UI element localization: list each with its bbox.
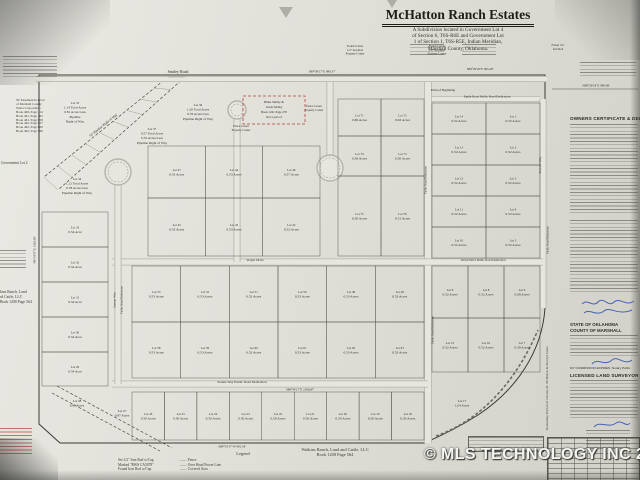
certificate-paragraph xyxy=(570,220,638,294)
lot-number: Lot 44 xyxy=(230,168,239,172)
bearing-label: S89°54'17"E 1056.87' xyxy=(286,388,315,392)
lot-number: Lot 18 xyxy=(404,412,413,416)
lot-acreage: 0.50 Acres xyxy=(303,417,319,421)
lot-acreage: 0.50 Acres xyxy=(400,417,416,421)
lot-acreage: 0.55 Acres Less xyxy=(141,136,163,140)
lot-number: Lot 2 xyxy=(510,145,517,149)
lot-acreage: 0.53 Acres xyxy=(169,228,185,232)
lot-acreage: 0.69 Acres xyxy=(515,293,531,297)
corner-note xyxy=(3,56,57,80)
lot-acreage: 0.50 Acres xyxy=(271,417,287,421)
lot-acreage: Pipeline Right of Way xyxy=(183,117,213,121)
lot-number: Lot 15 xyxy=(446,341,455,345)
lot-number: Lot 36 xyxy=(194,103,203,107)
lot-number: Lot 12 xyxy=(455,176,464,180)
lot-number: Lot 13 xyxy=(455,145,464,149)
text-line: Found Iron Rod w/Cap xyxy=(118,467,154,472)
lot-acreage: 1.20 Total Acres xyxy=(187,108,210,112)
commission-expires-label: MY COMMISSION EXPIRES: xyxy=(570,366,611,370)
lot-acreage: 0.52 Acres xyxy=(506,243,522,247)
pipeline-hatch xyxy=(154,88,171,89)
title-block: McHatton Ranch Estates A Subdivision loc… xyxy=(352,6,564,52)
lot-number: Lot 8 xyxy=(483,288,490,292)
lot-number: Lot 16 xyxy=(482,341,491,345)
pipeline-hatch xyxy=(72,155,87,165)
notary-public-label: Notary Public xyxy=(612,366,630,370)
certificate-panel: OWNERS CERTIFICATE & DEDICATION STATE OF… xyxy=(556,60,640,480)
lot-number: Lot 7 xyxy=(519,341,526,345)
street-label: Serene Way Public Road Dedication xyxy=(217,380,267,384)
lot-acreage: 0.52 Acres xyxy=(443,293,459,297)
lot-acreage: 0.53 Acres xyxy=(246,295,262,299)
excluded-parcel-text: Linda Smiley xyxy=(266,105,283,109)
red-filing-stamp xyxy=(0,428,32,454)
lot-number: Lot 51 xyxy=(250,290,259,294)
lot-number: Lot 1 xyxy=(510,114,517,118)
bearing-label: 50' Pipeline Right of Way xyxy=(89,113,119,138)
lot-acreage: Pipeline Right of Way xyxy=(62,191,92,195)
lot-acreage: 0.50 Acres xyxy=(352,217,368,221)
pipeline-hatch xyxy=(85,144,100,153)
legend-heading: Legend xyxy=(118,451,368,456)
lot-number: Lot 22 xyxy=(274,412,283,416)
lot-acreage: 0.53 Acres xyxy=(295,295,311,299)
lot-number: Lot 30 xyxy=(71,330,80,334)
lot-acreage: 0.56 Acres xyxy=(352,157,368,161)
lot-number: Lot 23 xyxy=(241,412,250,416)
clip-shadow-artifact xyxy=(387,0,397,8)
lot-acreage: Pipeline Right of Way xyxy=(137,141,167,145)
text-line: Covered Area xyxy=(180,467,221,472)
lot-number: Lot 31 xyxy=(71,295,80,299)
street-label: Public Road Dedication xyxy=(423,166,427,194)
lot-acreage: 0.78 Acres Less xyxy=(66,186,88,190)
lot-acreage: 0.53 Acres xyxy=(246,351,262,355)
lot-acreage: 0.53 Acres xyxy=(198,351,214,355)
lot-acreage: 0.52 Acres xyxy=(506,212,522,216)
lot-number: Lot 71 xyxy=(355,113,364,117)
lot-acreage: 0.50 Acres xyxy=(395,157,411,161)
lot-acreage: 0.50 Acres xyxy=(206,417,222,421)
state-heading: STATE OF OKLAHOMA xyxy=(570,322,618,327)
lot-number: Lot 61 xyxy=(298,346,307,350)
lot-acreage: 0.51 Acres xyxy=(395,217,411,221)
lot-acreage: 0.52 Acres xyxy=(284,228,300,232)
street-label: Service Way xyxy=(538,156,542,173)
lot-acreage: 0.53 Acres xyxy=(295,351,311,355)
mls-watermark: © MLS TECHNOLOGY INC 2026 xyxy=(424,446,640,464)
lot-acreage: 0.54 Acre xyxy=(68,300,82,304)
lot-acreage: 0.53 Acres xyxy=(149,295,165,299)
cul-de-sac xyxy=(105,159,131,185)
lot-acreage: 0.53 Acres xyxy=(392,295,408,299)
lot-number: Lot 21 xyxy=(306,412,315,416)
lot-acreage: 0.76 Acres Less xyxy=(187,112,209,116)
text-line: Book 462, Page 566 xyxy=(16,130,80,134)
lot-acreage: 0.50 Acres xyxy=(141,417,157,421)
bearing-label: S89°58'17"E 990.37' xyxy=(309,70,336,74)
lot-number: Lot 25 xyxy=(177,412,186,416)
lot-number: Lot 37 xyxy=(148,127,157,131)
lot-number: Lot 29 xyxy=(71,365,80,369)
lot-number: Lot 24 xyxy=(209,412,218,416)
excluded-parcel-text: Not a part of xyxy=(266,115,283,119)
lot-number: Lot 46 xyxy=(287,168,296,172)
notary-paragraph xyxy=(570,335,638,357)
street-label: Emily Road Public Road Dedication xyxy=(464,95,511,99)
certificate-paragraph xyxy=(570,124,638,216)
lot-acreage: 0.52 Acres xyxy=(443,346,459,350)
lot-acreage: 0.52 Acres xyxy=(452,150,468,154)
lot-number: Lot 33 xyxy=(71,225,80,229)
plat-title: McHatton Ranch Estates xyxy=(382,7,535,27)
text-line: Set 1/2" Iron Rod w/Cap xyxy=(118,458,154,463)
lot-number: Lot 74 xyxy=(355,152,364,156)
lot-number: Lot 45 xyxy=(173,223,182,227)
lot-acreage: 0.81 Acres xyxy=(70,404,85,408)
corner-note xyxy=(462,44,496,56)
lot-number: Lot 4 xyxy=(510,207,517,211)
lot-number: Lot 47 xyxy=(173,168,182,172)
lot-number: Lot 60 xyxy=(250,346,259,350)
surveyor-heading: LICENSED LAND SURVEYOR xyxy=(570,373,640,378)
pipeline-hatch xyxy=(58,166,72,178)
lot-acreage: 0.53 Acres xyxy=(169,173,185,177)
street-label: Public Road Dedication xyxy=(120,286,124,314)
adjoiner-owner-west: kins Ranch, Landrd Cattle, LLCBook 1208 … xyxy=(0,290,40,305)
lot-number: Lot 49 xyxy=(347,290,356,294)
pipeline-hatch xyxy=(44,177,58,190)
lot-acreage: 0.53 Acres xyxy=(198,295,214,299)
lot-acreage: 0.52 Acres xyxy=(452,243,468,247)
pipeline-hatch xyxy=(127,110,143,114)
signature-handwriting xyxy=(592,420,632,430)
bearing-label: N0°14'37"E 1320.00' xyxy=(33,236,37,264)
pipeline-hatch xyxy=(99,133,114,140)
red-survey-note: Property Corner xyxy=(305,108,324,112)
lot-acreage: 0.54 Acre xyxy=(68,230,82,234)
lot-number: Lot 11 xyxy=(455,207,464,211)
lot-acreage: 0.52 Acres xyxy=(452,119,468,123)
lot-acreage: 0.69 Acres xyxy=(352,118,368,122)
lot-number: Lot 3 xyxy=(510,176,517,180)
lot-number: Lot 9 xyxy=(447,288,454,292)
cul-de-sac xyxy=(317,155,343,181)
lot-acreage: 0.52 Acres xyxy=(452,212,468,216)
lot-acreage: 1.04 Acres xyxy=(455,404,470,408)
lot-acreage: 0.54 Acre xyxy=(68,265,82,269)
legend: Legend Set 1/2" Iron Rod w/CapMarked "RW… xyxy=(118,451,368,472)
signature-handwriting xyxy=(580,296,638,318)
street-label: Serene Way xyxy=(113,292,117,308)
lot-number: Lot 75 xyxy=(355,212,364,216)
lot-acreage: 0.54 Acre xyxy=(68,370,82,374)
surveyor-paragraph xyxy=(570,380,638,420)
bearing-label: S89°29'18"E 995.28' xyxy=(467,67,494,71)
plat-drawing: Lot 140.52 AcresLot 10.52 AcresLot 130.5… xyxy=(0,0,640,480)
lot-acreage: 0.58 Acres xyxy=(515,346,531,350)
text-line: Book 1208 Page 564 xyxy=(0,300,40,305)
lot-number: Lot 73 xyxy=(398,152,407,156)
pipeline-hatch xyxy=(140,99,156,102)
easement-note: 50' Easement in favorof Marshall CountyW… xyxy=(16,99,80,134)
lot-acreage: 0.63 Acres xyxy=(395,118,411,122)
lot-number: Lot 10 xyxy=(455,238,464,242)
lot-number: Lot 34 xyxy=(73,177,82,181)
lot-acreage: 0.53 Acres xyxy=(149,351,165,355)
street-label: Verlyn Drive Public Road Dedication xyxy=(461,258,506,262)
lot-number: Lot 62 xyxy=(347,346,356,350)
lot-acreage: 0.57 Total Acres xyxy=(141,132,164,136)
lot-acreage: 0.52 Acres xyxy=(506,181,522,185)
lot-number: Lot 5 xyxy=(510,238,517,242)
excluded-parcel-text: Book 1241 Page 270 xyxy=(261,110,287,114)
lot-number: Lot 43 xyxy=(230,223,239,227)
lot-number: Lot 17 xyxy=(458,399,467,403)
lot-number: Lot 6 xyxy=(519,288,526,292)
lot-acreage: 0.53 Acres xyxy=(344,295,360,299)
pipeline-hatch xyxy=(113,121,129,127)
lot-acreage: 0.52 Acres xyxy=(452,181,468,185)
clip-shadow-artifact xyxy=(279,7,293,18)
lot-acreage: 0.50 Acres xyxy=(335,417,351,421)
county-heading: COUNTY OF MARSHALL xyxy=(570,328,622,333)
excluded-parcel-text: Blake Smiley & xyxy=(264,100,285,104)
lot-number: Lot 50 xyxy=(298,290,307,294)
lot-acreage: 0.87 Acres xyxy=(115,414,130,418)
text-line: Marshall County, Oklahoma. xyxy=(352,46,564,52)
legal-description-text xyxy=(580,62,636,76)
lot-acreage: 0.52 Acres xyxy=(506,119,522,123)
lot-number: Lot 14 xyxy=(455,114,464,118)
lot-number: Lot 53 xyxy=(152,290,161,294)
red-survey-note: Property Corner xyxy=(346,52,365,56)
lot-number: Lot 19 xyxy=(371,412,380,416)
lot-number: Lot 20 xyxy=(339,412,348,416)
lot-acreage: 0.52 Acres xyxy=(479,293,495,297)
lot-number: Lot 28 xyxy=(73,399,82,403)
lot-number: Lot 63 xyxy=(396,346,405,350)
lot-acreage: 0.53 Acres xyxy=(392,351,408,355)
lot-acreage: 0.50 Acres xyxy=(173,417,189,421)
corner-note xyxy=(0,250,26,268)
lot-acreage: 0.54 Acre xyxy=(68,335,82,339)
lot-acreage: 0.52 Acres xyxy=(479,346,495,350)
street-label: Smiley Road xyxy=(168,69,189,74)
legend-symbols: Set 1/2" Iron Rod w/CapMarked "RWS CA507… xyxy=(118,458,154,472)
red-survey-note: Property Corner xyxy=(232,128,251,132)
street-label: Public Road Dedication xyxy=(431,316,435,344)
legend-lines: FenceOver Head Power LineCovered Area xyxy=(180,458,221,472)
bearing-label: Point of Beginning xyxy=(431,88,456,92)
lot-acreage: 0.53 Acres xyxy=(227,173,243,177)
lot-number: Lot 52 xyxy=(201,290,210,294)
lot-number: Lot 27 xyxy=(118,409,127,413)
street-label: Verlyn Drive xyxy=(246,258,264,262)
lot-acreage: 0.53 Acres xyxy=(227,228,243,232)
owners-certificate-heading: OWNERS CERTIFICATE & DEDICATION xyxy=(570,116,640,121)
lot-number: Lot 72 xyxy=(398,113,407,117)
lot-acreage: 0.52 Acres xyxy=(506,150,522,154)
lot-acreage: 0.57 Acres xyxy=(284,173,300,177)
lot-acreage: 0.50 Acres xyxy=(368,417,384,421)
lot-number: Lot 58 xyxy=(152,346,161,350)
lot-acreage: 1.12 Total Acres xyxy=(66,182,89,186)
lot-number: Lot 48 xyxy=(396,290,405,294)
lot-number: Lot 42 xyxy=(287,223,296,227)
lot-acreage: 0.50 Acres xyxy=(238,417,254,421)
lot-number: Lot 26 xyxy=(144,412,153,416)
government-lot-label: Government Lot 2 xyxy=(1,161,28,165)
lot-acreage: 0.53 Acres xyxy=(344,351,360,355)
plat-paper: Lot 140.52 AcresLot 10.52 AcresLot 130.5… xyxy=(0,0,640,480)
lot-number: Lot 32 xyxy=(71,260,80,264)
adjoiner-owner-east: Remaining Portion of Charles M. McHatton… xyxy=(545,118,549,430)
corner-note xyxy=(410,44,444,56)
plat-subtitle: A Subdivision located in Government Lot … xyxy=(352,27,564,52)
lot-number: Lot 59 xyxy=(201,346,210,350)
lot-number: Lot 76 xyxy=(398,212,407,216)
photo-of-plat-document: Lot 140.52 AcresLot 10.52 AcresLot 130.5… xyxy=(0,0,640,480)
